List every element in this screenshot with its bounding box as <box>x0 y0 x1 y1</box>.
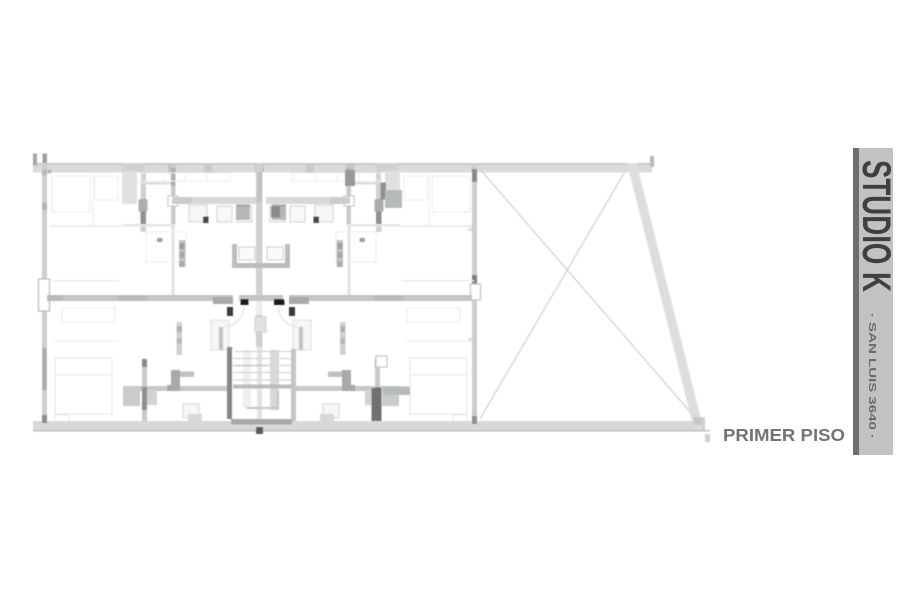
svg-text:· SAN LUIS 3640 ·: · SAN LUIS 3640 · <box>866 313 878 439</box>
svg-text:STUDIO K: STUDIO K <box>854 160 898 292</box>
svg-text:PRIMER PISO: PRIMER PISO <box>723 425 845 445</box>
